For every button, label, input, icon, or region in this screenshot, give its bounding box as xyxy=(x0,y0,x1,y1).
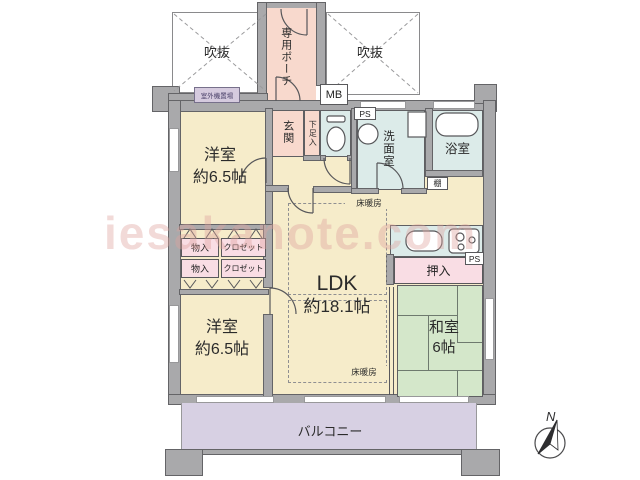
balcony-label: バルコニー xyxy=(280,424,380,440)
pier-bottom-left xyxy=(165,449,203,476)
void-left-label: 吹抜 xyxy=(187,45,247,61)
western-room-upper-name: 洋室 xyxy=(175,147,265,165)
wall-washroom-left xyxy=(351,108,357,194)
pipe-space-top-label: PS xyxy=(359,109,370,119)
wall-washroom-bottom-b xyxy=(401,188,427,194)
wall-toilet-bottom-a xyxy=(320,155,326,161)
window xyxy=(485,298,494,360)
wall-closet-top xyxy=(179,224,269,230)
pipe-space-side-box: PS xyxy=(465,252,484,265)
pipe-space-side-label: PS xyxy=(469,254,480,264)
storage-lower-label: 物入 xyxy=(191,262,209,275)
western-room-upper-size: 約6.5帖 xyxy=(170,169,270,187)
balcony-rail xyxy=(178,449,480,455)
closet-lower-box: クロゼット xyxy=(221,259,266,278)
closet-upper-box: クロゼット xyxy=(221,238,266,257)
compass-needle-icon xyxy=(538,420,557,454)
closet-lower-label: クロゼット xyxy=(224,263,264,274)
shelf-box: 棚 xyxy=(427,177,448,190)
wall-western1-right xyxy=(265,108,273,228)
japanese-room-name: 和室 xyxy=(414,319,474,336)
shoe-cabinet-label: 下足入 xyxy=(306,112,318,154)
shelf-label: 棚 xyxy=(434,178,442,189)
compass-north-label: N xyxy=(546,409,556,424)
closet-upper-label: クロゼット xyxy=(224,242,264,253)
japanese-room-size: 6帖 xyxy=(414,339,474,356)
meter-box-label: MB xyxy=(326,89,343,101)
washroom-label: 洗面室 xyxy=(380,118,396,180)
floor-heating-lower-label: 床暖房 xyxy=(340,366,388,378)
wall-washroom-bathroom xyxy=(425,108,433,172)
window xyxy=(433,101,475,109)
ldk-name: LDK xyxy=(287,273,387,295)
bathroom-label: 浴室 xyxy=(432,142,483,158)
porch-left-wall xyxy=(257,2,267,105)
window xyxy=(304,396,386,403)
window xyxy=(196,396,274,403)
tatami-line xyxy=(457,371,458,396)
tatami-line xyxy=(398,370,482,371)
wall-bathroom-bottom xyxy=(425,170,483,177)
storage-lower-box: 物入 xyxy=(181,259,219,278)
oshiire-label: 押入 xyxy=(426,262,450,279)
storage-upper-label: 物入 xyxy=(191,241,209,254)
wall-closet-bottom xyxy=(179,289,269,295)
storage-upper-box: 物入 xyxy=(181,238,219,257)
floor-plan: 吹抜 吹抜 専用ポーチ MB 室外機置場 玄関 下足入 洗面室 浴室 PS 棚 … xyxy=(0,0,640,480)
private-porch-label: 専用ポーチ xyxy=(277,16,293,98)
pier-bottom-right xyxy=(461,449,500,476)
room-toilet xyxy=(320,110,351,157)
western-room-lower-size: 約6.5帖 xyxy=(172,341,272,359)
window xyxy=(399,396,469,403)
wall-washroom-bottom-a xyxy=(351,188,379,194)
entrance-label: 玄関 xyxy=(280,113,294,151)
outdoor-unit-label: 室外機置場 xyxy=(201,90,234,100)
western-room-lower-name: 洋室 xyxy=(177,319,267,337)
pipe-space-top-box: PS xyxy=(354,107,376,120)
compass-needle-white-icon xyxy=(550,420,558,450)
compass-circle-icon xyxy=(535,428,565,458)
room-bathroom xyxy=(432,110,483,172)
sliding-door-line xyxy=(393,287,394,395)
wall-oshiire-left xyxy=(386,254,394,285)
meter-box: MB xyxy=(320,84,348,105)
porch-right-wall xyxy=(316,2,326,86)
compass: N xyxy=(535,409,565,458)
ldk-size: 約18.1帖 xyxy=(282,297,392,316)
void-right-label: 吹抜 xyxy=(340,45,400,61)
floor-heating-upper-label: 床暖房 xyxy=(345,197,393,209)
outdoor-unit-box: 室外機置場 xyxy=(194,87,240,103)
